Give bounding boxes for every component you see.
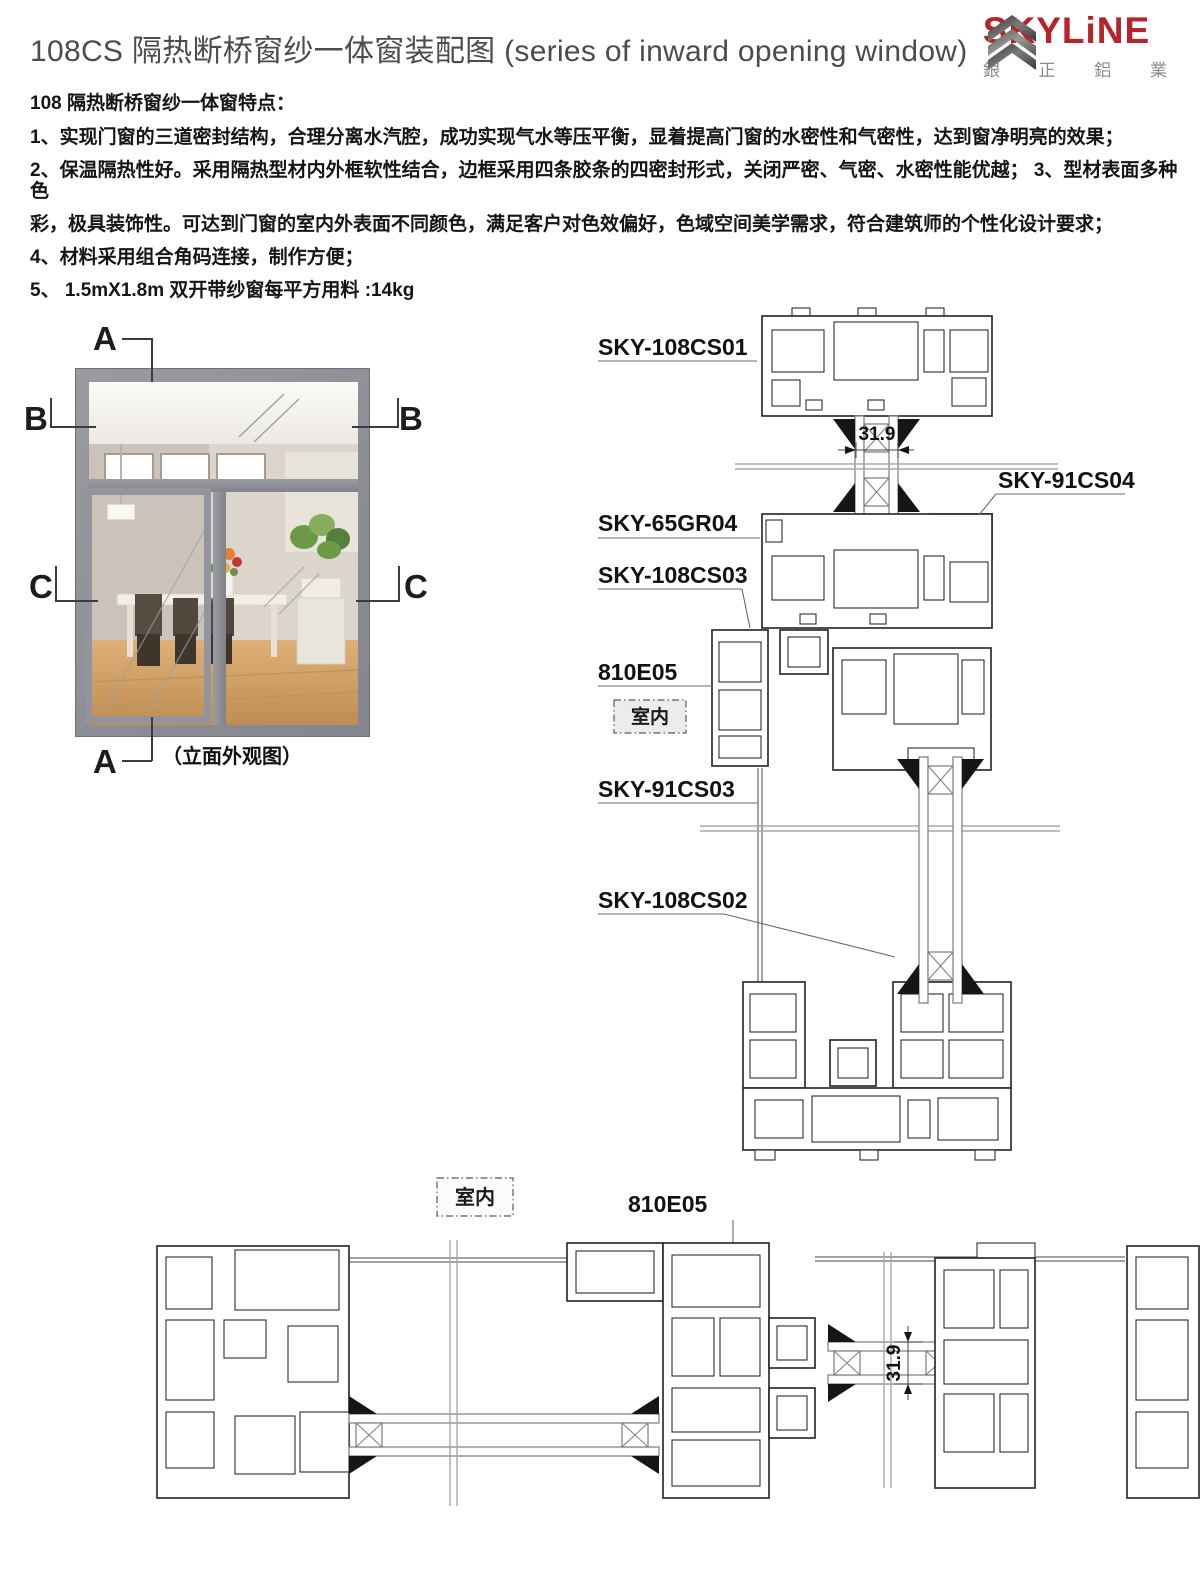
leader-line (50, 398, 52, 428)
horizontal-section-drawing: 室内 810E05 (100, 1170, 1200, 1571)
glass-unit-left (349, 1396, 659, 1474)
transom-profile (762, 514, 992, 628)
right-mullion-profile (935, 1243, 1035, 1488)
part-label-sky-108cs01: SKY-108CS01 (598, 334, 748, 360)
bottom-screen-profile (743, 982, 805, 1088)
feature-list: 108 隔热断桥窗纱一体窗特点： 1、实现门窗的三道密封结构，合理分离水汽腔，成… (30, 88, 1180, 313)
indoor-label: 室内 (631, 705, 669, 728)
right-jamb-profile (1127, 1246, 1199, 1498)
part-label-sky-108cs03: SKY-108CS03 (598, 562, 748, 588)
catalog-page: 108CS 隔热断桥窗纱一体窗装配图 (series of inward ope… (0, 0, 1200, 1571)
leader-line (356, 600, 399, 602)
screen-frame-profile (712, 630, 768, 766)
part-label-sky-91cs04: SKY-91CS04 (998, 467, 1135, 493)
logo-chevron-icon (983, 12, 1041, 76)
left-jamb-profile (157, 1246, 349, 1498)
window-elevation (75, 368, 370, 737)
part-label-sky-91cs03: SKY-91CS03 (598, 776, 735, 802)
feature-line: 5、 1.5mX1.8m 双开带纱窗每平方用料 :14kg (30, 280, 1180, 301)
window-left-sash (85, 488, 211, 723)
part-label-sky-108cs02: SKY-108CS02 (598, 887, 748, 913)
feature-line: 2、保温隔热性好。采用隔热型材内外框软性结合，边框采用四条胶条的四密封形式，关闭… (30, 160, 1180, 202)
section-label-c-left: C (29, 568, 53, 606)
sill-profile (743, 1088, 1011, 1160)
leader-line (352, 426, 398, 428)
section-label-b-left: B (24, 400, 48, 438)
dimension-value: 31.9 (884, 1345, 905, 1382)
section-label-c-right: C (404, 568, 428, 606)
company-logo: SKYLiNE 銀 正 鋁 業 (983, 12, 1184, 81)
leader-line (398, 566, 400, 602)
elevation-caption: （立面外观图） (162, 740, 302, 769)
dimension-glass-width: 31.9 (884, 1326, 922, 1400)
section-label-b-right: B (399, 400, 423, 438)
sash-profile (833, 648, 991, 770)
part-label-sky-65gr04: SKY-65GR04 (598, 510, 738, 536)
part-label-810e05: 810E05 (628, 1191, 708, 1217)
leader-line (50, 426, 96, 428)
leader-line (151, 338, 153, 382)
feature-line: 彩，极具装饰性。可达到门窗的室内外表面不同颜色，满足客户对色效偏好，色域空间美学… (30, 214, 1180, 235)
leader-line (397, 398, 399, 428)
bottom-sash-profile (893, 982, 1011, 1088)
leader-line (55, 566, 57, 602)
feature-line: 4、材料采用组合角码连接，制作方便； (30, 247, 1180, 268)
part-label-810e05: 810E05 (598, 659, 678, 685)
leader-line (122, 338, 152, 340)
page-title: 108CS 隔热断桥窗纱一体窗装配图 (series of inward ope… (30, 26, 968, 70)
indoor-label: 室内 (455, 1185, 495, 1209)
meeting-stile-profile (567, 1243, 815, 1498)
vertical-section-drawing: 31.9 (560, 300, 1200, 1180)
window-mullion (213, 492, 226, 725)
indoor-label-box: 室内 (437, 1178, 513, 1216)
glass-unit-lower (897, 757, 984, 1003)
leader-line (122, 760, 152, 762)
leader-line (151, 717, 153, 761)
leader-line (55, 600, 98, 602)
sash-connector-profile (780, 630, 828, 674)
feature-heading: 108 隔热断桥窗纱一体窗特点： (30, 88, 1180, 115)
dimension-value: 31.9 (859, 424, 896, 445)
section-label-a-bottom: A (93, 743, 117, 781)
head-frame-profile (762, 308, 992, 416)
section-label-a-top: A (93, 320, 117, 358)
indoor-label-box: 室内 (614, 700, 686, 733)
feature-line: 1、实现门窗的三道密封结构，合理分离水汽腔，成功实现气水等压平衡，显着提高门窗的… (30, 127, 1180, 148)
bottom-connector-profile (830, 1040, 876, 1086)
